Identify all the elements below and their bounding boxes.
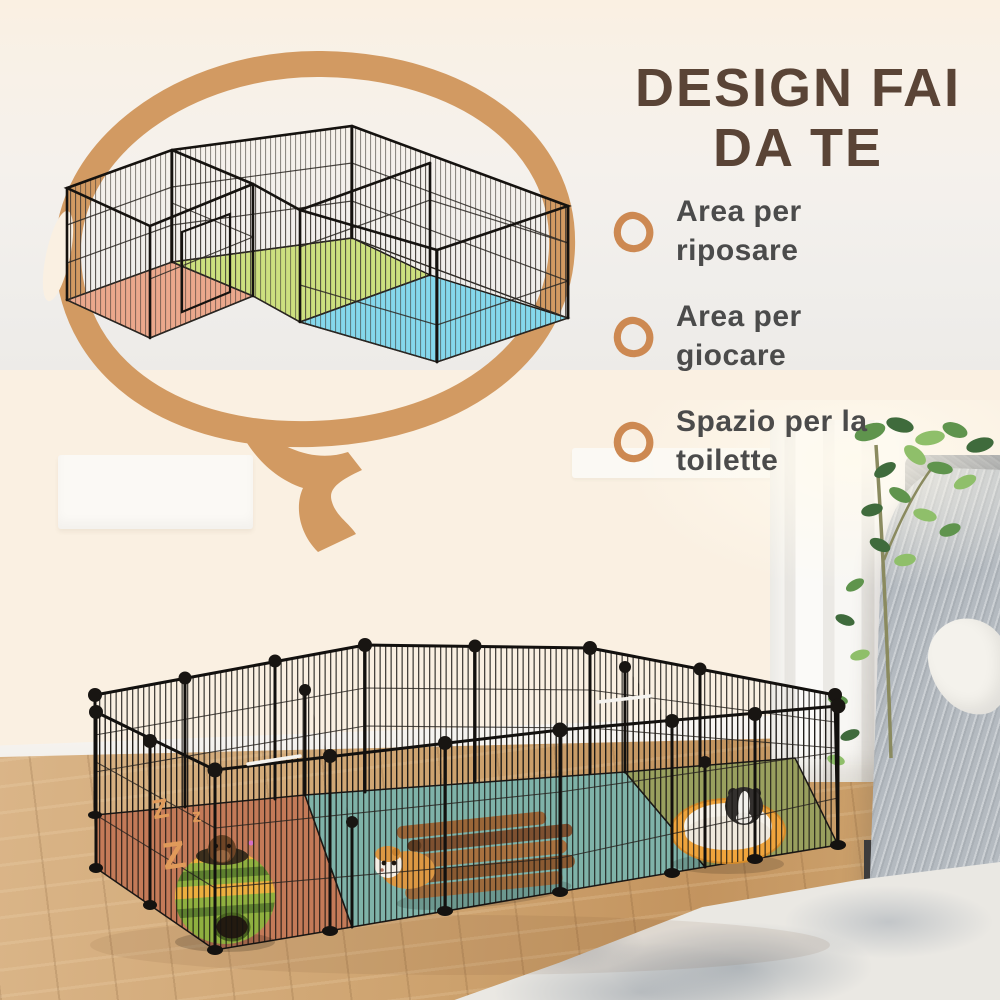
- feature-label: Spazio per la toilette: [676, 402, 876, 480]
- headline-line-1: DESIGN FAI: [596, 58, 1000, 118]
- feature-item-play: Area per giocare: [612, 297, 1000, 375]
- headline: DESIGN FAI DA TE: [596, 58, 1000, 179]
- headline-line-2: DA TE: [596, 118, 1000, 178]
- feature-item-toilet: Spazio per la toilette: [612, 402, 1000, 480]
- feature-label: Area per giocare: [676, 297, 876, 375]
- feature-label: Area per riposare: [676, 192, 876, 270]
- bullet-ring-icon: [612, 209, 656, 253]
- marketing-image: Z z Z DESIGN FAI DA TE Area per riposare…: [0, 0, 1000, 1000]
- bullet-ring-icon: [612, 419, 656, 463]
- bullet-ring-icon: [612, 314, 656, 358]
- cage-illustration: [67, 126, 568, 362]
- feature-list: Area per riposare Area per giocare Spazi…: [612, 192, 1000, 507]
- feature-item-rest: Area per riposare: [612, 192, 1000, 270]
- playpen: Z z Z: [88, 638, 846, 975]
